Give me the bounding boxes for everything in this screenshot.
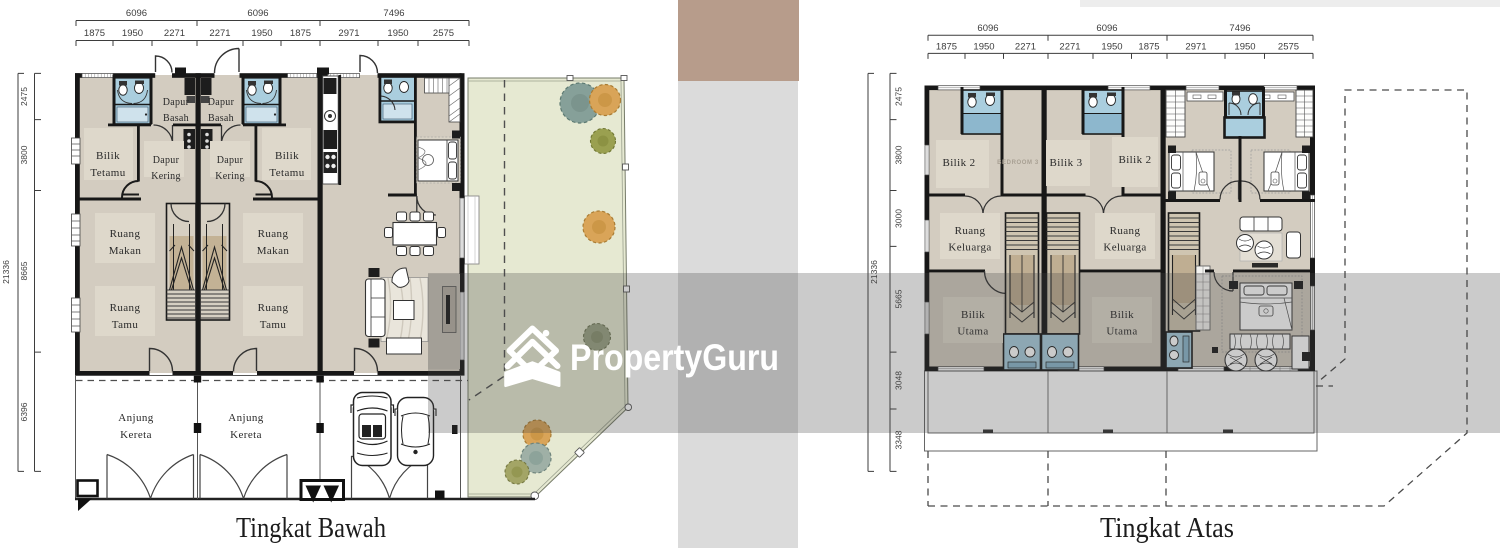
svg-text:Bilik 2: Bilik 2	[942, 157, 975, 169]
svg-text:6096: 6096	[977, 23, 998, 34]
svg-text:Ruang: Ruang	[110, 228, 141, 240]
svg-text:7496: 7496	[383, 8, 404, 19]
svg-text:2575: 2575	[433, 28, 454, 39]
svg-text:Dapur: Dapur	[153, 155, 180, 166]
svg-text:Dapur: Dapur	[217, 155, 244, 166]
svg-text:Anjung: Anjung	[118, 412, 153, 424]
svg-text:1875: 1875	[1138, 42, 1159, 53]
svg-text:Kereta: Kereta	[120, 429, 152, 441]
svg-text:1950: 1950	[1101, 42, 1122, 53]
svg-text:Kering: Kering	[215, 171, 245, 182]
svg-text:Basah: Basah	[163, 113, 189, 124]
svg-text:Ruang: Ruang	[955, 225, 986, 237]
svg-text:Bilik: Bilik	[275, 150, 299, 162]
svg-text:1875: 1875	[84, 28, 105, 39]
svg-text:Tamu: Tamu	[260, 319, 287, 331]
svg-text:1950: 1950	[387, 28, 408, 39]
svg-text:6096: 6096	[247, 8, 268, 19]
svg-text:Bilik 3: Bilik 3	[1049, 157, 1082, 169]
svg-text:6396: 6396	[19, 402, 29, 421]
svg-text:PropertyGuru: PropertyGuru	[570, 337, 779, 378]
svg-text:Dapur: Dapur	[163, 97, 190, 108]
svg-text:Keluarga: Keluarga	[1103, 242, 1146, 254]
svg-text:2971: 2971	[338, 28, 359, 39]
svg-text:2271: 2271	[164, 28, 185, 39]
svg-text:3348: 3348	[894, 430, 904, 449]
svg-text:Tingkat Bawah: Tingkat Bawah	[236, 512, 386, 544]
svg-text:8665: 8665	[19, 261, 29, 280]
svg-text:Tamu: Tamu	[112, 319, 139, 331]
svg-text:2475: 2475	[19, 87, 29, 106]
svg-text:BEDROOM 3: BEDROOM 3	[997, 160, 1039, 166]
svg-text:2271: 2271	[1059, 42, 1080, 53]
svg-text:Kereta: Kereta	[230, 429, 262, 441]
svg-text:2475: 2475	[894, 87, 904, 106]
svg-text:Tetamu: Tetamu	[269, 167, 304, 179]
svg-text:Ruang: Ruang	[258, 302, 289, 314]
svg-text:Makan: Makan	[109, 245, 142, 257]
svg-text:Ruang: Ruang	[110, 302, 141, 314]
svg-text:6096: 6096	[126, 8, 147, 19]
svg-text:Anjung: Anjung	[228, 412, 263, 424]
svg-text:3000: 3000	[894, 209, 904, 228]
svg-text:Tingkat Atas: Tingkat Atas	[1100, 512, 1234, 544]
svg-text:Tetamu: Tetamu	[90, 167, 125, 179]
svg-text:6096: 6096	[1096, 23, 1117, 34]
svg-text:Basah: Basah	[208, 113, 234, 124]
svg-text:Bilik: Bilik	[96, 150, 120, 162]
svg-text:Bilik 2: Bilik 2	[1118, 154, 1151, 166]
svg-text:Kering: Kering	[151, 171, 181, 182]
svg-text:7496: 7496	[1229, 23, 1250, 34]
svg-text:2271: 2271	[209, 28, 230, 39]
svg-text:Keluarga: Keluarga	[948, 242, 991, 254]
svg-text:21336: 21336	[1, 260, 11, 284]
svg-text:3800: 3800	[19, 145, 29, 164]
svg-text:2271: 2271	[1015, 42, 1036, 53]
svg-text:3800: 3800	[894, 145, 904, 164]
svg-text:1950: 1950	[251, 28, 272, 39]
svg-text:Ruang: Ruang	[1110, 225, 1141, 237]
svg-text:Dapur: Dapur	[208, 97, 235, 108]
svg-text:2575: 2575	[1278, 42, 1299, 53]
svg-text:Ruang: Ruang	[258, 228, 289, 240]
svg-text:1875: 1875	[290, 28, 311, 39]
svg-text:1950: 1950	[973, 42, 994, 53]
svg-text:Makan: Makan	[257, 245, 290, 257]
svg-text:1950: 1950	[1234, 42, 1255, 53]
svg-text:2971: 2971	[1185, 42, 1206, 53]
svg-text:1950: 1950	[122, 28, 143, 39]
svg-text:1875: 1875	[936, 42, 957, 53]
